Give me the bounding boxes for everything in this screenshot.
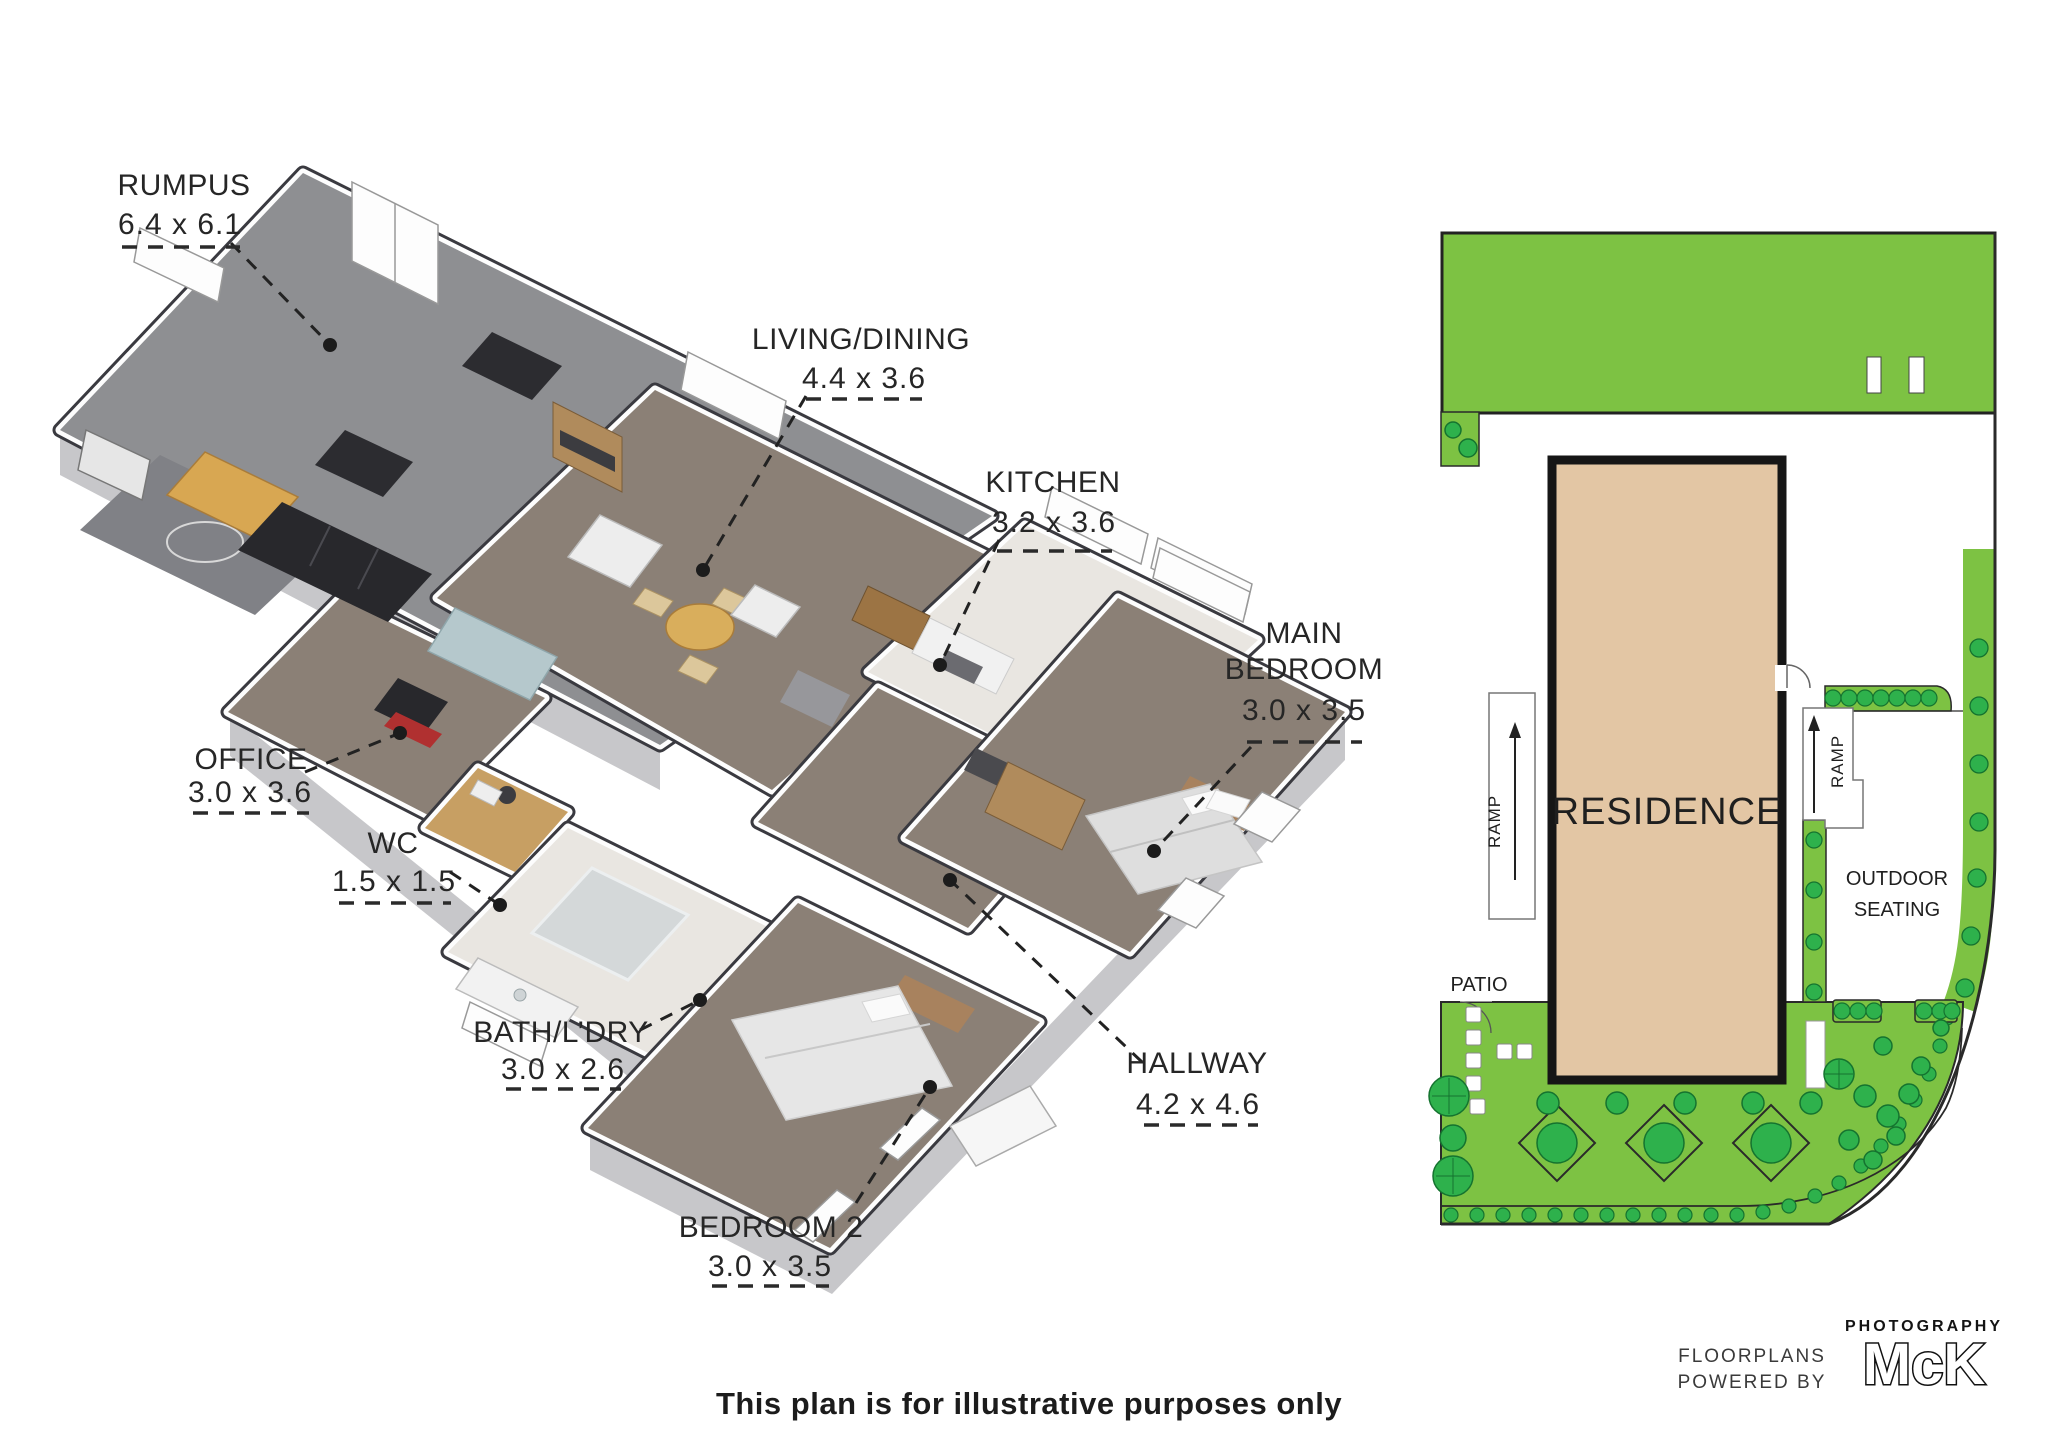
room-dims-bath-ldry: 3.0 x 2.6	[501, 1052, 625, 1088]
credit-line2: POWERED BY	[1672, 1370, 1832, 1396]
residence-building	[1552, 460, 1782, 1080]
floor-plan-3d	[60, 173, 1362, 1294]
ramp-left-label: RAMP	[1485, 795, 1504, 848]
tree-icon	[1445, 422, 1461, 438]
tree-icon	[1459, 439, 1477, 457]
outdoor-seating-label-line2: SEATING	[1854, 899, 1940, 921]
room-dims-kitchen: 3.2 x 3.6	[992, 505, 1116, 541]
lawn-post	[1867, 357, 1881, 393]
brand-logo-svg: McK	[1834, 1332, 2014, 1398]
room-dims-hallway: 4.2 x 4.6	[1136, 1087, 1260, 1123]
scene: RAMP RAMP RESIDENCE PATIO OUTDOOR SEATIN…	[0, 0, 2048, 1451]
credit-text: FLOORPLANS POWERED BY	[1672, 1344, 1832, 1395]
site-plan: RAMP RAMP RESIDENCE PATIO OUTDOOR SEATIN…	[1429, 233, 1995, 1224]
outdoor-seating-label-line1: OUTDOOR	[1846, 868, 1948, 890]
room-dims-living-dining: 4.4 x 3.6	[802, 361, 926, 397]
disclaimer-text: This plan is for illustrative purposes o…	[716, 1386, 1342, 1422]
garden-walkway	[1806, 1021, 1825, 1088]
room-dims-office: 3.0 x 3.6	[188, 775, 312, 811]
basin	[514, 989, 526, 1001]
room-label-bath-ldry: BATH/L’DRY	[473, 1015, 649, 1051]
room-label-office: OFFICE	[195, 742, 308, 778]
brand-mck-text: McK	[1863, 1332, 1986, 1397]
room-label-hallway: HALLWAY	[1126, 1046, 1267, 1082]
page: RAMP RAMP RESIDENCE PATIO OUTDOOR SEATIN…	[0, 0, 2048, 1451]
patio-label: PATIO	[1450, 974, 1507, 996]
room-dims-wc: 1.5 x 1.5	[332, 864, 456, 900]
credit-line1: FLOORPLANS	[1672, 1344, 1832, 1370]
room-label-bedroom-2: BEDROOM 2	[679, 1210, 864, 1246]
room-dims-bedroom-2: 3.0 x 3.5	[708, 1249, 832, 1285]
room-label-wc: WC	[368, 826, 419, 862]
door-gap	[1775, 665, 1787, 691]
diamond-hedges	[1519, 1105, 1809, 1181]
garden-bed	[1441, 412, 1479, 466]
dining-table	[666, 604, 734, 650]
room-dims-rumpus: 6.4 x 6.1	[118, 207, 242, 243]
ramp-right-label: RAMP	[1828, 735, 1847, 788]
lawn-post	[1909, 357, 1924, 393]
room-label-living-dining: LIVING/DINING	[752, 322, 970, 358]
brand-logo: McK PHOTOGRAPHY	[1834, 1332, 2014, 1336]
room-label-kitchen: KITCHEN	[985, 465, 1120, 501]
room-dims-main-bedroom: 3.0 x 3.5	[1242, 693, 1366, 729]
residence-label: RESIDENCE	[1552, 791, 1783, 833]
room-label-main-bedroom: MAIN BEDROOM	[1204, 616, 1404, 688]
room-label-rumpus: RUMPUS	[117, 168, 250, 204]
door-swing-arc	[1787, 665, 1810, 688]
